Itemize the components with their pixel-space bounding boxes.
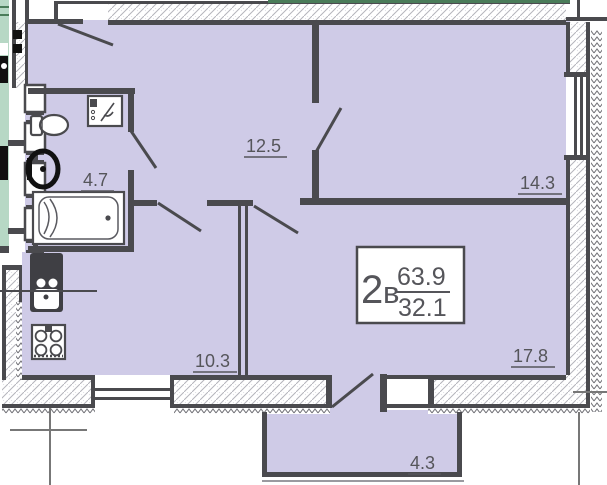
vent-shaft (13, 30, 22, 39)
toilet-icon (31, 115, 68, 135)
adjacent-unit-boundary-line (268, 0, 570, 3)
neighbor-unit-strip (0, 0, 9, 253)
room-label-kitchen: 10.3 (195, 351, 230, 371)
right-insulation-strip (591, 30, 602, 412)
unit-type-number: 2 (361, 268, 383, 312)
bathtub-icon (33, 192, 124, 244)
living-area: 32.1 (398, 294, 447, 322)
room-label-bathroom: 4.7 (83, 170, 108, 190)
unit-info-box: 2 в 63.9 32.1 (357, 247, 464, 323)
floor-plan-image: 12.5 14.3 4.7 10.3 17.8 4.3 2 в 63.9 32.… (0, 0, 607, 485)
room-label-hallway: 12.5 (246, 136, 281, 156)
kitchen-sink-icon (30, 253, 63, 312)
neighbor-fixture (0, 56, 8, 83)
bedroom-window-glazing (574, 77, 577, 155)
room-label-living-room: 17.8 (513, 346, 548, 366)
balcony-door-frame (380, 374, 387, 412)
floor-plan-page: 12.5 14.3 4.7 10.3 17.8 4.3 2 в 63.9 32.… (0, 0, 607, 485)
reference-line (0, 290, 97, 292)
neighbor-door (0, 146, 8, 180)
entrance-opening (83, 4, 108, 19)
room-label-balcony: 4.3 (410, 453, 435, 473)
vent-shaft (13, 44, 22, 53)
stove-icon (32, 325, 65, 359)
total-area: 63.9 (397, 263, 446, 291)
room-label-bedroom: 14.3 (520, 173, 555, 193)
washing-machine-icon (88, 96, 122, 126)
balcony-window (387, 375, 428, 408)
kitchen-window (91, 375, 174, 408)
